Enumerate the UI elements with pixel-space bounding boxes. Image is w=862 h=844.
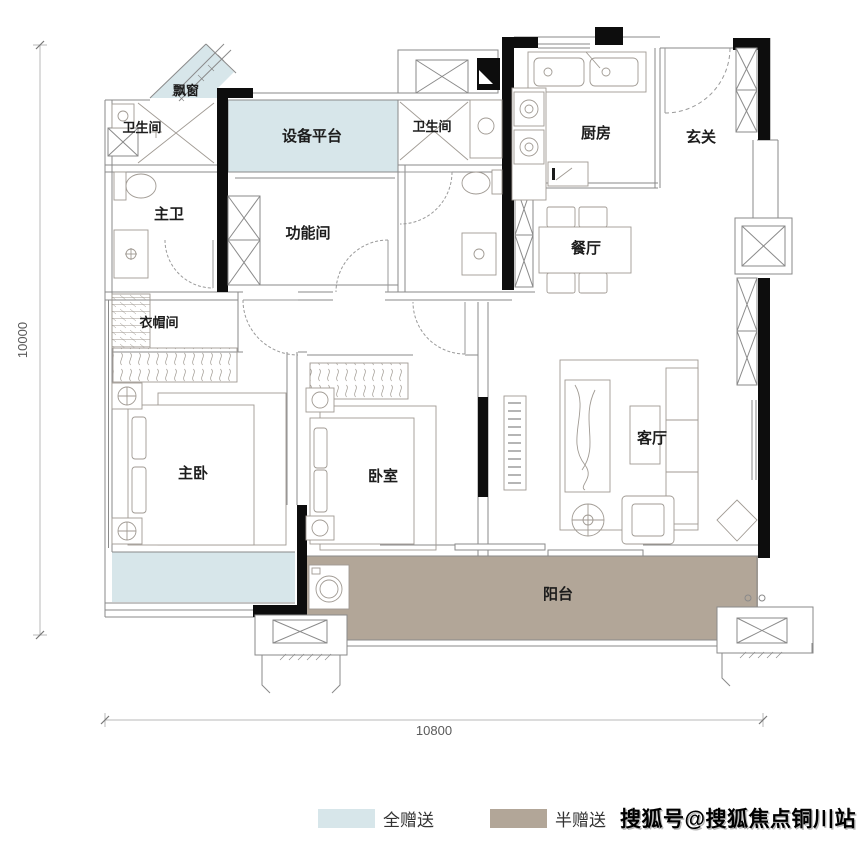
- label-foyer: 玄关: [686, 128, 716, 146]
- living-room-furniture: [504, 360, 757, 544]
- floor-plan: 10000 10800 飘窗 卫生间 设备平台 卫生间 厨房 玄关 主卫 功能间…: [0, 0, 862, 844]
- dimension-bottom: 10800: [416, 723, 452, 738]
- label-equipment-platform: 设备平台: [282, 127, 342, 145]
- label-function-room: 功能间: [285, 224, 330, 242]
- label-living-room: 客厅: [636, 429, 667, 447]
- legend: 全赠送 半赠送: [318, 806, 654, 831]
- columns: [108, 48, 792, 385]
- master-gift-strip: [112, 552, 295, 602]
- washing-machine: [309, 565, 349, 609]
- bedroom-furniture: [306, 363, 436, 550]
- label-bathroom-1: 卫生间: [122, 120, 161, 135]
- label-balcony: 阳台: [543, 585, 573, 603]
- watermark: 搜狐号@搜狐焦点铜川站: [620, 803, 856, 833]
- label-bedroom: 卧室: [368, 467, 398, 485]
- legend-label-half-gift: 半赠送: [555, 806, 606, 831]
- kitchen-fixtures: [512, 52, 646, 200]
- label-master-bathroom: 主卫: [154, 205, 184, 223]
- label-cloakroom: 衣帽间: [139, 315, 178, 330]
- label-bathroom-2: 卫生间: [412, 119, 451, 134]
- label-master-bedroom: 主卧: [178, 464, 208, 482]
- floor-plan-svg: 10000 10800 飘窗 卫生间 设备平台 卫生间 厨房 玄关 主卫 功能间…: [0, 0, 862, 844]
- label-kitchen: 厨房: [581, 124, 611, 142]
- legend-label-full-gift: 全赠送: [383, 806, 434, 831]
- label-dining-room: 餐厅: [571, 239, 601, 257]
- dimension-left: 10000: [15, 322, 30, 358]
- legend-swatch-half-gift: [490, 809, 547, 828]
- master-bath-fixtures: [114, 172, 156, 278]
- balcony-area: [307, 556, 758, 640]
- label-bay-window: 飘窗: [173, 83, 199, 98]
- master-bedroom-furniture: [112, 348, 286, 545]
- legend-swatch-full-gift: [318, 809, 375, 828]
